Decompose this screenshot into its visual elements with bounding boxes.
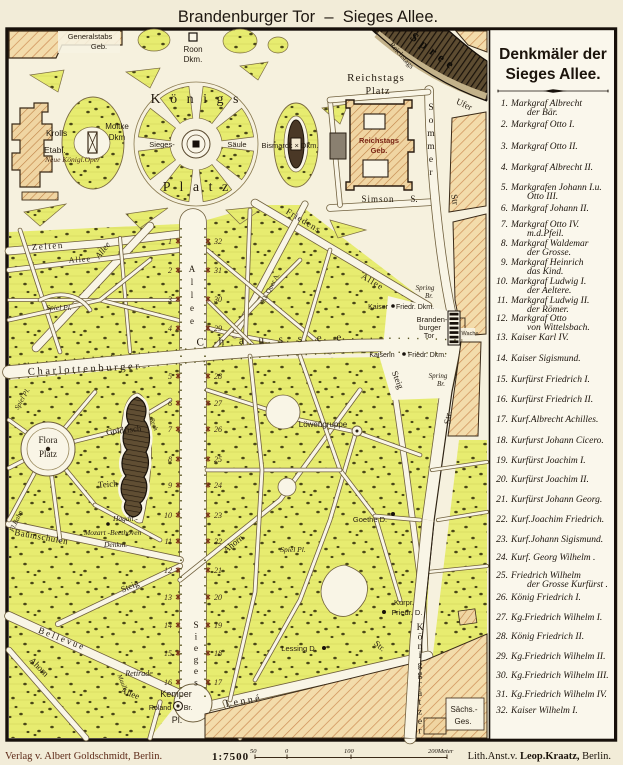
svg-text:10.: 10. bbox=[496, 277, 508, 287]
svg-text:3: 3 bbox=[167, 295, 172, 304]
svg-text:von Wittelsbach.: von Wittelsbach. bbox=[527, 323, 590, 333]
svg-text:Markgraf Otto II.: Markgraf Otto II. bbox=[510, 141, 578, 152]
svg-text:29.: 29. bbox=[496, 652, 508, 662]
svg-text:Kaiser Wilhelm I.: Kaiser Wilhelm I. bbox=[510, 706, 578, 716]
svg-text:König Friedrich II.: König Friedrich II. bbox=[510, 632, 584, 642]
svg-text:Bismarck × Dkm.: Bismarck × Dkm. bbox=[262, 141, 319, 150]
svg-text:20.: 20. bbox=[496, 475, 508, 485]
svg-text:14.: 14. bbox=[496, 354, 508, 364]
svg-text:8.: 8. bbox=[501, 239, 508, 249]
svg-text:Retirade: Retirade bbox=[124, 669, 153, 678]
svg-text:26.: 26. bbox=[496, 593, 508, 603]
svg-text:14: 14 bbox=[164, 621, 172, 630]
svg-text:Sächs.-: Sächs.- bbox=[450, 705, 477, 714]
svg-text:Pl.: Pl. bbox=[172, 715, 183, 725]
svg-text:8: 8 bbox=[168, 455, 172, 464]
svg-text:Spiel Pl.: Spiel Pl. bbox=[280, 545, 306, 554]
svg-text:24.: 24. bbox=[496, 553, 508, 563]
svg-text:15.: 15. bbox=[496, 375, 508, 385]
svg-text:Geb.: Geb. bbox=[91, 42, 107, 51]
svg-text:31.: 31. bbox=[495, 690, 508, 700]
svg-text:17.: 17. bbox=[496, 415, 508, 425]
svg-text:19.: 19. bbox=[496, 456, 508, 466]
svg-text:Roland: Roland bbox=[149, 705, 171, 712]
svg-text:S.: S. bbox=[410, 194, 417, 204]
svg-text:Markgraf Johann II.: Markgraf Johann II. bbox=[510, 203, 589, 214]
svg-text:23.: 23. bbox=[496, 535, 508, 545]
svg-text:Kurfürst Joachim II.: Kurfürst Joachim II. bbox=[510, 474, 589, 485]
svg-text:Sieges Allee.: Sieges Allee. bbox=[505, 66, 600, 83]
svg-text:Spring: Spring bbox=[416, 284, 435, 292]
svg-text:1.: 1. bbox=[501, 99, 508, 109]
svg-text:12: 12 bbox=[164, 566, 172, 575]
svg-text:26: 26 bbox=[214, 425, 222, 434]
svg-text:24: 24 bbox=[214, 481, 222, 490]
svg-text:9.: 9. bbox=[501, 258, 508, 268]
svg-text:Platz: Platz bbox=[39, 449, 57, 459]
svg-text:Moltke: Moltke bbox=[105, 122, 129, 131]
svg-text:32: 32 bbox=[213, 237, 222, 246]
svg-text:2.: 2. bbox=[501, 120, 508, 130]
svg-text:20: 20 bbox=[214, 593, 222, 602]
svg-text:Krolls: Krolls bbox=[46, 128, 67, 138]
svg-text:30: 30 bbox=[213, 295, 222, 304]
svg-text:Kg.Friedrich Wilhelm IV.: Kg.Friedrich Wilhelm IV. bbox=[510, 690, 607, 700]
svg-text:Kg.Friedrich Wilhelm III.: Kg.Friedrich Wilhelm III. bbox=[510, 671, 609, 681]
svg-text:31: 31 bbox=[213, 266, 222, 275]
svg-text:Kaiserin: Kaiserin bbox=[369, 352, 394, 359]
svg-text:Friedr. Dkm.: Friedr. Dkm. bbox=[396, 304, 434, 311]
svg-text:Kaiser Sigismund.: Kaiser Sigismund. bbox=[510, 354, 581, 364]
svg-text:5.: 5. bbox=[501, 183, 508, 193]
svg-text:Kurpr.: Kurpr. bbox=[394, 598, 414, 607]
svg-text:Goethe D.: Goethe D. bbox=[353, 515, 387, 524]
svg-text:7.: 7. bbox=[501, 220, 508, 230]
svg-text:22.: 22. bbox=[496, 515, 508, 525]
svg-text:4: 4 bbox=[168, 324, 172, 333]
svg-text:18.: 18. bbox=[496, 436, 508, 446]
svg-text:29: 29 bbox=[214, 324, 222, 333]
svg-text:Lessing D.: Lessing D. bbox=[281, 644, 316, 653]
svg-text:Spiel Pl.: Spiel Pl. bbox=[46, 303, 72, 312]
svg-text:Roon: Roon bbox=[183, 45, 202, 54]
svg-text:Löwengruppe: Löwengruppe bbox=[299, 420, 348, 429]
svg-text:Dkm.: Dkm. bbox=[184, 55, 203, 64]
svg-text:11.: 11. bbox=[497, 296, 508, 306]
svg-text:der Grosse.: der Grosse. bbox=[527, 248, 571, 258]
svg-text:Reichstags: Reichstags bbox=[359, 136, 399, 145]
svg-text:Brandenburger Tor – Sieges A: Brandenburger Tor – Sieges Allee. bbox=[178, 8, 438, 26]
svg-text:100: 100 bbox=[344, 748, 355, 755]
svg-text:Generalstabs: Generalstabs bbox=[68, 32, 113, 41]
svg-text:der Aeltere.: der Aeltere. bbox=[527, 286, 571, 296]
svg-text:3.: 3. bbox=[500, 142, 508, 152]
svg-text:Etabl.: Etabl. bbox=[44, 145, 66, 155]
svg-text:27.: 27. bbox=[496, 613, 508, 623]
svg-text:Hagdn -: Hagdn - bbox=[112, 514, 138, 523]
svg-text:Markgraf Otto I.: Markgraf Otto I. bbox=[510, 119, 575, 130]
svg-text:Mozart -Beethoven: Mozart -Beethoven bbox=[83, 528, 142, 537]
svg-text:Teich: Teich bbox=[98, 478, 119, 489]
svg-text:22: 22 bbox=[214, 537, 222, 546]
svg-text:23: 23 bbox=[214, 511, 222, 520]
svg-text:16.: 16. bbox=[496, 395, 508, 405]
svg-text:Sieges-: Sieges- bbox=[149, 140, 175, 149]
svg-text:19: 19 bbox=[214, 621, 222, 630]
svg-text:Br.: Br. bbox=[437, 380, 445, 388]
svg-text:Kurf. Georg Wilhelm .: Kurf. Georg Wilhelm . bbox=[510, 552, 595, 563]
svg-text:m.d.Pfeil.: m.d.Pfeil. bbox=[527, 228, 564, 239]
svg-text:12.: 12. bbox=[496, 314, 508, 324]
svg-text:2: 2 bbox=[168, 266, 172, 275]
svg-text:50: 50 bbox=[250, 748, 257, 755]
svg-text:Kg.Friedrich Wilhelm I.: Kg.Friedrich Wilhelm I. bbox=[510, 613, 602, 623]
svg-text:28: 28 bbox=[214, 372, 222, 381]
svg-text:Neue Königl.Oper: Neue Königl.Oper bbox=[44, 155, 100, 164]
svg-text:Markgraf Albrecht II.: Markgraf Albrecht II. bbox=[510, 162, 593, 173]
svg-text:17: 17 bbox=[214, 678, 223, 687]
svg-text:30.: 30. bbox=[495, 671, 508, 681]
svg-text:Kurfürst Johann Georg.: Kurfürst Johann Georg. bbox=[510, 494, 602, 505]
svg-text:der Grosse Kurfürst .: der Grosse Kurfürst . bbox=[527, 579, 608, 590]
svg-text:Friedr. Dkm.: Friedr. Dkm. bbox=[408, 352, 446, 359]
svg-text:13.: 13. bbox=[496, 333, 508, 343]
svg-text:Br.: Br. bbox=[425, 292, 433, 300]
svg-text:Br.: Br. bbox=[184, 705, 193, 712]
svg-text:Kaiser: Kaiser bbox=[368, 304, 389, 311]
svg-text:Ges.: Ges. bbox=[455, 717, 472, 726]
svg-text:4.: 4. bbox=[501, 163, 508, 173]
svg-text:5: 5 bbox=[168, 372, 172, 381]
svg-text:Wache: Wache bbox=[462, 331, 479, 337]
svg-text:21: 21 bbox=[214, 566, 222, 575]
svg-text:25: 25 bbox=[214, 455, 222, 464]
svg-text:21.: 21. bbox=[496, 495, 508, 505]
svg-text:Spring: Spring bbox=[429, 372, 448, 380]
svg-text:Str.: Str. bbox=[443, 411, 454, 425]
svg-text:Flora: Flora bbox=[39, 435, 58, 445]
svg-text:1: 1 bbox=[168, 237, 172, 246]
svg-text:Kaiser Karl IV.: Kaiser Karl IV. bbox=[510, 333, 569, 343]
svg-text:Kemper: Kemper bbox=[160, 689, 192, 699]
svg-text:18: 18 bbox=[214, 649, 222, 658]
svg-text:Denkm.: Denkm. bbox=[103, 540, 127, 549]
svg-text:Kurf.Johann Sigismund.: Kurf.Johann Sigismund. bbox=[510, 534, 603, 545]
svg-text:Allee: Allee bbox=[68, 254, 91, 265]
svg-text:Reichstags: Reichstags bbox=[347, 72, 405, 84]
svg-text:Kurf.Albrecht Achilles.: Kurf.Albrecht Achilles. bbox=[510, 414, 598, 425]
svg-text:Kurfürst Friedrich I.: Kurfürst Friedrich I. bbox=[510, 374, 590, 385]
svg-text:Str: Str bbox=[449, 193, 461, 205]
svg-text:10: 10 bbox=[164, 511, 172, 520]
svg-text:Kurfürst Joachim I.: Kurfürst Joachim I. bbox=[510, 455, 586, 466]
svg-text:28.: 28. bbox=[496, 632, 508, 642]
svg-text:6: 6 bbox=[168, 399, 172, 408]
svg-text:Kurfurst Johann Cicero.: Kurfurst Johann Cicero. bbox=[510, 435, 604, 446]
svg-text:200Meter: 200Meter bbox=[428, 748, 454, 755]
svg-text:Säule: Säule bbox=[227, 140, 246, 149]
svg-text:P l a t z: P l a t z bbox=[163, 180, 231, 195]
svg-text:9: 9 bbox=[168, 481, 172, 490]
svg-text:Lith.Anst.v. Leop.Kraatz, Berl: Lith.Anst.v. Leop.Kraatz, Berlin. bbox=[468, 751, 611, 762]
svg-text:11: 11 bbox=[165, 537, 172, 546]
svg-text:6.: 6. bbox=[501, 204, 508, 214]
svg-text:K ö n i g s: K ö n i g s bbox=[151, 92, 242, 107]
svg-text:Kurfürst Friedrich II.: Kurfürst Friedrich II. bbox=[510, 394, 593, 405]
svg-text:Simson: Simson bbox=[361, 194, 394, 204]
svg-text:1:7500: 1:7500 bbox=[212, 751, 249, 763]
svg-text:Dkm: Dkm bbox=[109, 133, 126, 142]
svg-text:16: 16 bbox=[164, 678, 172, 687]
svg-text:Friedr. D.: Friedr. D. bbox=[392, 608, 423, 617]
svg-text:Geb.: Geb. bbox=[371, 146, 388, 155]
svg-text:13: 13 bbox=[164, 593, 172, 602]
svg-text:Platz: Platz bbox=[366, 86, 391, 97]
svg-text:Otto III.: Otto III. bbox=[527, 192, 558, 202]
svg-text:der Bär.: der Bär. bbox=[527, 108, 558, 118]
svg-text:Tor: Tor bbox=[424, 331, 435, 340]
svg-text:Kg.Friedrich Wilhelm II.: Kg.Friedrich Wilhelm II. bbox=[510, 652, 605, 662]
svg-text:32.: 32. bbox=[495, 706, 508, 716]
svg-text:25.: 25. bbox=[496, 571, 508, 581]
svg-text:15: 15 bbox=[164, 649, 172, 658]
svg-text:König Friedrich I.: König Friedrich I. bbox=[510, 593, 581, 603]
svg-text:Verlag v. Albert Goldschmidt,: Verlag v. Albert Goldschmidt, Berlin. bbox=[5, 751, 162, 762]
svg-text:das Kind.: das Kind. bbox=[527, 267, 563, 277]
svg-text:Kurf.Joachim Friedrich.: Kurf.Joachim Friedrich. bbox=[510, 514, 604, 525]
svg-text:Denkmäler der: Denkmäler der bbox=[499, 46, 607, 63]
svg-text:27: 27 bbox=[214, 399, 223, 408]
